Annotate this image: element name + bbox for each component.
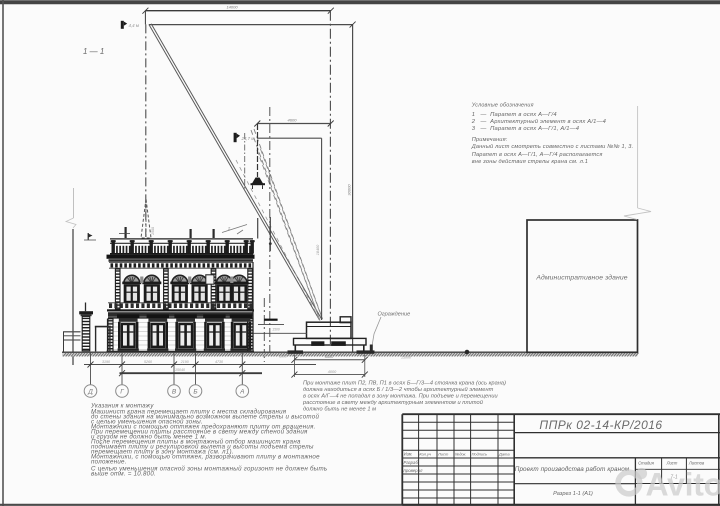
svg-text:Административное здание: Административное здание [535,274,627,282]
svg-text:Данный лист смотреть совместно: Данный лист смотреть совместно с листами… [471,143,634,150]
svg-text:Кол.уч: Кол.уч [419,452,431,457]
svg-text:Стадия: Стадия [638,461,654,466]
svg-text:Разрез 1-1 (А1): Разрез 1-1 (А1) [553,491,593,497]
svg-text:Avito: Avito [646,466,720,502]
svg-text:3 — Парапет в осях А—Г/1,: 3 — Парапет в осях А—Г/1, А/1—4 [472,126,579,132]
svg-text:2 — Архитектурный элемент в: 2 — Архитектурный элемент в осях А/1—4 [471,118,606,125]
svg-text:должно быть не менее 1 м: должно быть не менее 1 м [303,407,376,413]
svg-text:В: В [172,389,177,396]
svg-text:Подпись: Подпись [472,452,487,457]
svg-text:15000: 15000 [401,356,411,360]
svg-text:При монтаже плит П2, ПВ, П1 в: При монтаже плит П2, ПВ, П1 в осях Б—Г/3… [303,381,506,387]
svg-text:15040: 15040 [175,368,185,372]
svg-text:Лист: Лист [666,461,678,466]
svg-text:4730: 4730 [215,360,223,364]
svg-text:1500: 1500 [151,227,155,235]
svg-text:Лист: Лист [437,452,449,457]
svg-text:Изм.: Изм. [404,452,413,457]
svg-text:1500: 1500 [272,328,280,332]
svg-text:ППРк 02-14-КР/2016: ППРк 02-14-КР/2016 [539,418,662,432]
svg-text:должна находиться в осях Б / 1: должна находиться в осях Б / 1/3—2 чтобы… [303,386,494,393]
svg-text:4500: 4500 [325,355,334,359]
svg-text:Проект производства работ кран: Проект производства работ краном [515,465,630,473]
svg-text:расстояние в свету между архит: расстояние в свету между архитектурным э… [302,399,484,406]
svg-text:30000: 30000 [347,184,352,196]
svg-text:Д: Д [87,389,93,396]
svg-text:Разраб.: Разраб. [404,460,420,465]
svg-text:№док.: №док. [455,452,466,457]
svg-text:Г: Г [120,389,124,396]
svg-text:Ограждение: Ограждение [378,312,411,318]
svg-text:положение.: положение. [91,458,127,465]
svg-text:Листов: Листов [688,461,705,466]
svg-text:1000: 1000 [279,355,287,359]
svg-text:выше отм. = 10.800.: выше отм. = 10.800. [91,470,156,477]
svg-text:24,7 м: 24,7 м [241,136,255,141]
svg-text:4000: 4000 [328,370,337,374]
svg-text:5260: 5260 [144,360,152,364]
svg-text:14000: 14000 [226,5,238,10]
svg-text:4,4 м: 4,4 м [129,23,139,28]
svg-text:1 — Парапет в осях А—Г/4: 1 — Парапет в осях А—Г/4 [472,112,557,118]
svg-text:2190: 2190 [180,360,189,364]
svg-text:4600: 4600 [288,118,298,123]
svg-text:в осях А/Г—4 не попадал в зону: в осях А/Г—4 не попадал в зону монтажа. … [303,394,499,400]
svg-text:Б: Б [193,389,197,396]
svg-text:А: А [239,389,244,396]
svg-text:3190: 3190 [102,360,110,364]
svg-text:Условные обозначения: Условные обозначения [471,103,534,109]
svg-text:Парапет в осях А—Г/1, А—Г/4 р: Парапет в осях А—Г/1, А—Г/4 располагаетс… [472,152,603,158]
svg-text:Дата: Дата [498,452,510,457]
svg-text:1 — 1: 1 — 1 [83,47,104,56]
svg-text:проверил: проверил [404,468,423,473]
svg-text:18400: 18400 [316,244,320,255]
svg-text:Примечания:: Примечания: [472,137,508,143]
svg-text:вне зоны действия стрелы крана: вне зоны действия стрелы крана см. л.1 [472,158,588,165]
